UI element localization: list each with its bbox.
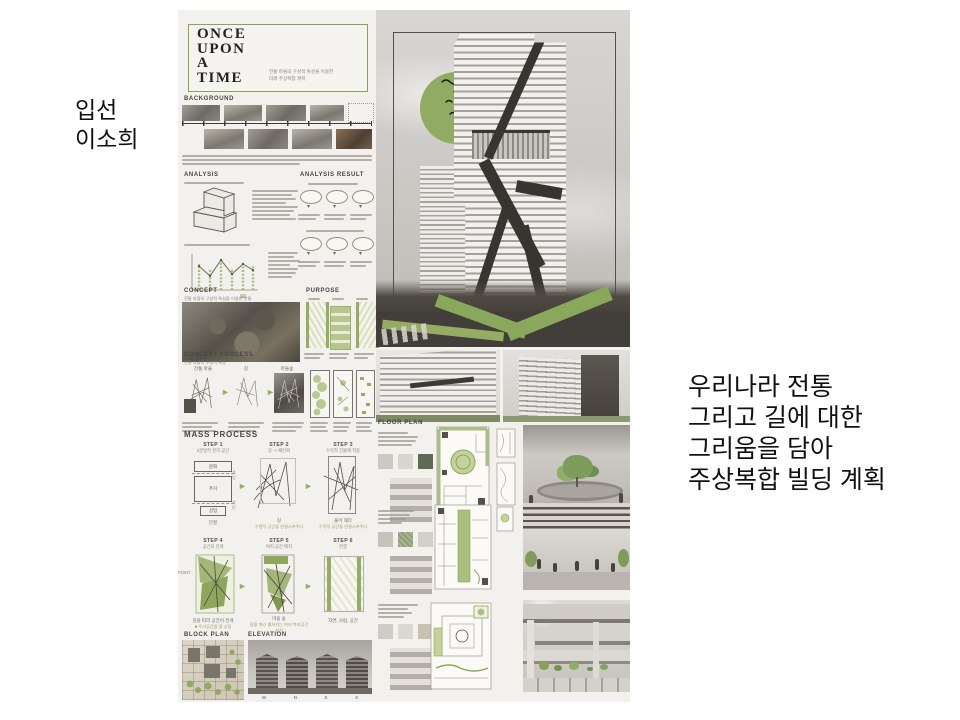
cp-zone-diagram-1 (310, 370, 330, 418)
author-line: 이소희 (75, 125, 138, 154)
section-concept-process: CONCEPT PROCESS (184, 352, 253, 358)
figure-silhouette (619, 493, 623, 503)
render-exterior-1 (376, 350, 500, 422)
slide: 입선 이소희 우리나라 전통 그리고 길에 대한 그리움을 담아 주상복합 빌딩… (0, 0, 960, 720)
result-caption (324, 212, 348, 222)
floor-plan-3 (430, 602, 492, 690)
poster-subtitle: 전통 마을의 구성적 특성을 이용한 미래 주상복합 계획 (269, 69, 364, 82)
cp-sketch-3 (274, 373, 304, 413)
section-purpose: PURPOSE (306, 288, 340, 294)
cp-sketch-1 (184, 373, 218, 413)
terrace-slab (523, 650, 630, 664)
figure-silhouette (611, 563, 615, 572)
concept-subtitle: 전통 마을의 구성적 특성을 이용한 전통 (184, 296, 299, 301)
cp-label-2: 길 (236, 366, 256, 372)
award-caption: 입선 이소희 (75, 96, 138, 154)
block-plan-image (182, 640, 244, 700)
figure-silhouette (575, 561, 579, 571)
material-swatch (398, 454, 413, 469)
step1-caption: 단절 (182, 520, 244, 526)
step4-caption: 길을 따라 공간이 전개 ■ 주거공간을 몰 상점 (178, 618, 248, 630)
result-ellipse (300, 190, 322, 204)
down-arrow-icon: ▾ (307, 251, 310, 257)
description-caption: 우리나라 전통 그리고 길에 대한 그리움을 담아 주상복합 빌딩 계획 (688, 372, 886, 496)
mass-step-5: STEP 5 여러 공간 배치 (248, 538, 310, 550)
lobby-floor (523, 572, 630, 590)
title-box: ONCE UPON A TIME 전통 마을의 구성적 특성을 이용한 미래 주… (188, 24, 368, 92)
down-arrow-icon: ▾ (333, 204, 336, 210)
axon-diagram (186, 186, 244, 240)
tree-trunk (576, 477, 578, 487)
desc-line-4: 주상복합 빌딩 계획 (688, 465, 886, 496)
step5-caption: 마을 숲 길을 따라 펼쳐지는 여러 복지공간 설치 (248, 616, 310, 633)
timeline-photo (224, 105, 262, 121)
lobby-plant (525, 551, 537, 567)
striped-facade (519, 356, 581, 419)
step3-caption: 풀어 헤다 수직적 공간을 연결시켜주다 (312, 518, 374, 530)
cp-caption (356, 420, 374, 434)
timeline-photo (266, 105, 306, 121)
render-lobby (523, 503, 630, 590)
section-analysis: ANALYSIS (184, 172, 219, 178)
step5-diagram (258, 554, 298, 614)
material-swatch (418, 454, 433, 469)
desc-line-1: 우리나라 전통 (688, 372, 886, 403)
section-analysis-result: ANALYSIS RESULT (300, 172, 364, 178)
section-concept: CONCEPT (184, 288, 218, 294)
result-caption (350, 212, 374, 222)
right-arrow-icon: ► (238, 582, 247, 591)
cp-zone-diagram-3 (356, 370, 375, 418)
elevation-north (286, 656, 308, 688)
result-caption (298, 212, 322, 222)
right-arrow-icon: ► (221, 388, 230, 397)
purpose-caption (354, 351, 376, 361)
render-terrace (523, 600, 630, 692)
purpose-diagram-2 (330, 306, 351, 350)
purpose-caption (329, 351, 351, 361)
fp3-notes (378, 602, 422, 620)
elevation-letters: W N E S (248, 696, 372, 701)
material-swatch (398, 624, 413, 639)
terrace-column (593, 622, 599, 682)
mass-step-1: STEP 1 2분법적 분리 공간 (182, 442, 244, 454)
section-block-plan: BLOCK PLAN (184, 632, 229, 638)
hero-render (376, 10, 630, 347)
step3-diagram (320, 456, 362, 514)
section-mass-process: MASS PROCESS (184, 430, 258, 439)
tree-planter (537, 481, 623, 501)
cp-caption (333, 420, 353, 434)
terrace-plants (539, 662, 549, 670)
result-caption (350, 259, 374, 269)
material-swatch (418, 532, 433, 547)
down-arrow-icon: ▾ (307, 204, 310, 210)
material-swatch (398, 532, 413, 547)
elevation-east (316, 654, 338, 688)
atrium-tree (563, 455, 593, 479)
material-collage (390, 648, 432, 690)
down-arrow-icon: ▾ (359, 251, 362, 257)
terrace-floor (523, 678, 630, 692)
floor-plan-1 (436, 426, 490, 512)
chart-notes (268, 250, 302, 280)
timeline-photo (336, 129, 372, 149)
material-swatch (378, 532, 393, 547)
render-atrium (523, 425, 630, 510)
step4-diagram (194, 554, 236, 614)
dark-facade (581, 355, 619, 419)
down-arrow-icon: ▾ (333, 251, 336, 257)
analysis-result-subtitle (308, 181, 364, 187)
floor-plan-mini (496, 506, 514, 532)
desc-line-2: 그리고 길에 대한 (688, 403, 886, 434)
material-collage (390, 556, 432, 594)
section-floor-plan: FLOOR PLAN (378, 420, 423, 426)
figure-silhouette (595, 559, 599, 570)
tower-crack (515, 180, 562, 200)
step6-diagram (324, 556, 364, 612)
elevation-south (346, 656, 368, 688)
step2-diagram (250, 456, 296, 514)
mass-step-2: STEP 2 길 -> 패턴화 (248, 442, 310, 454)
ground-strip (503, 416, 630, 422)
result-ellipse (326, 190, 348, 204)
timeline-photo (182, 105, 220, 121)
timeline-ticks (182, 121, 372, 126)
fp2-notes (378, 508, 422, 526)
result-ellipse (326, 237, 348, 251)
down-arrow-icon: ▾ (359, 204, 362, 210)
floor-plan-2 (434, 504, 492, 590)
render-exterior-2 (503, 350, 630, 422)
concept-process-subtitle: 전통 마을의 구성적 특징 (184, 360, 274, 365)
cp-caption (272, 420, 306, 434)
purpose-diagram-1 (306, 302, 329, 348)
timeline-mini-chart (348, 103, 374, 123)
floor-plan-mini (496, 428, 516, 458)
analysis-result-subtitle-2 (306, 228, 366, 234)
figure-silhouette (537, 559, 541, 569)
result-ellipse (352, 190, 374, 204)
cp-sketch-2 (230, 373, 264, 413)
ceiling-shadow (523, 425, 630, 455)
right-arrow-icon: ► (304, 482, 313, 491)
cp-zone-diagram-2 (333, 370, 353, 418)
step2-caption: 길 수평적 공간을 연결시켜주다 (248, 518, 310, 530)
timeline-photo (204, 129, 244, 149)
timeline-photo (292, 129, 332, 149)
terrace-slab (535, 628, 630, 645)
section-background: BACKGROUND (184, 96, 234, 102)
elevation-image (248, 640, 372, 694)
purpose-label (332, 296, 346, 302)
result-caption (298, 259, 322, 269)
award-line: 입선 (75, 96, 138, 125)
material-swatch (378, 454, 393, 469)
material-swatch (378, 624, 393, 639)
timeline-photo (310, 105, 344, 121)
cp-caption (310, 420, 330, 434)
striped-facade (380, 350, 496, 422)
elevation-west (256, 654, 278, 688)
step1-diagram: 문화 차단 주거 차단 상업 (192, 458, 236, 516)
timeline-photo (248, 129, 288, 149)
background-paragraph (182, 153, 372, 167)
result-caption (324, 259, 348, 269)
result-ellipse (352, 237, 374, 251)
main-tower (454, 34, 566, 316)
terrace-column (527, 620, 534, 682)
desc-line-3: 그리움을 담아 (688, 434, 886, 465)
step4-point-label: POINT (178, 570, 191, 575)
step6-caption: 자연, 사람, 공간 (312, 618, 374, 624)
fp1-notes (378, 430, 422, 448)
floor-plan-mini (496, 462, 516, 506)
analysis-subtitle-2 (184, 242, 254, 248)
figure-silhouette (553, 563, 557, 572)
competition-board: ONCE UPON A TIME 전통 마을의 구성적 특성을 이용한 미래 주… (178, 10, 630, 702)
cp-label-1: 전통 마을 (188, 366, 218, 372)
lobby-ceiling (523, 503, 630, 529)
mass-step-4: STEP 4 공간의 전개 (182, 538, 244, 550)
terrace-slab (523, 604, 630, 623)
purpose-caption (304, 351, 326, 361)
analysis-notes (252, 188, 300, 222)
poster-title: ONCE UPON A TIME (197, 27, 246, 85)
mass-step-3: STEP 3 수직적 건물에 적용 (312, 442, 374, 454)
cp-label-3: 마을숲 (272, 366, 302, 372)
result-ellipse (300, 237, 322, 251)
right-arrow-icon: ► (304, 582, 313, 591)
right-arrow-icon: ► (238, 482, 247, 491)
lobby-plant (618, 549, 629, 567)
mass-step-6: STEP 6 연결 (312, 538, 374, 550)
section-elevation: ELEVATION (248, 632, 287, 638)
